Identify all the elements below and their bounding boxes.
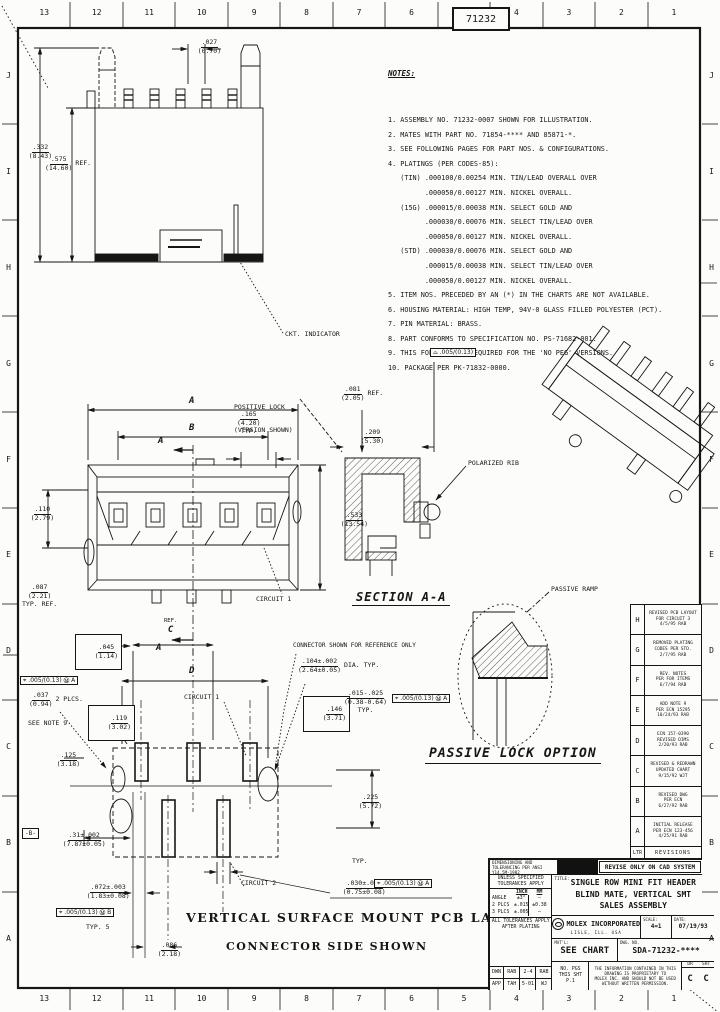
tolerance-row: 3 PLCS ±.005 — (492, 909, 549, 916)
dim-plan-height: .533(13.54) (324, 504, 369, 536)
tolerance-rows: ANGLE ±3° — 2 PLCS ±.015 ±0.38 3 PLCS ±.… (492, 895, 549, 916)
signature-rows: DWN RAB 2-4 RAB APP TAH 5-01 WJ (490, 966, 551, 990)
datum-b-flag: -B- (22, 828, 39, 839)
zone-letters-right: JIHGFEDCBA (703, 28, 720, 986)
revision-row: G REMOVED PLATING CODES PER STD. 2/7/95 … (631, 635, 701, 665)
tolerance-row: ANGLE ±3° — (492, 895, 549, 902)
zone-numbers-top: 13121110987654321 (18, 0, 700, 26)
drawing-number-tab: 71232 (452, 7, 510, 31)
see-note-9: SEE NOTE 9 (28, 720, 67, 728)
section-letter-bottom: A (156, 643, 161, 654)
position-frame-b: ⌖ .005/(0.13) Ⓜ B (56, 908, 114, 917)
revision-row: D ECN 157-0390 REVISED DIMS 2/20/93 RAB (631, 726, 701, 756)
dim-pcb-31: .31±.002(7.87±0.05) (46, 824, 107, 856)
typ-label: TYP. (352, 858, 368, 866)
black-band (558, 860, 598, 874)
sheet-cell: NO. PGS THIS SHT P.1 (552, 962, 589, 990)
dim-pcb-015: .015-.025(0.38-0.64) TYP. (343, 690, 388, 714)
dim-pcb-072: .072±.003(1.83±0.08) (70, 876, 131, 908)
dim-pcb-037: .037(0.94) 2 PLCS. (28, 692, 83, 709)
dim-front-ref: .575(14.60) REF. (44, 156, 91, 173)
tolerance-block: UNLESS SPECIFIED TOLERANCES APPLY INCH M… (490, 875, 552, 990)
dim-pcb-104: .104±.002(2.64±0.05) DIA. TYP. (297, 658, 379, 675)
material-cell: MAT'L: SEE CHART (552, 939, 618, 961)
company-cell: MOLEX INCORPORATED LISLE, ILL. USA (552, 916, 641, 938)
circuit-1-callout-pcb: CIRCUIT 1 (184, 694, 219, 702)
pcb-layout-subtitle: CONNECTOR SIDE SHOWN (226, 940, 428, 953)
dim-plan-left: .110(2.79) (14, 498, 55, 530)
dim-pcb-125: .125(3.18) (40, 744, 81, 776)
revision-row: A INITIAL RELEASE PER ECN 123-456 4/25/9… (631, 817, 701, 847)
fcf-b-suffix: TYP. 5 (86, 924, 109, 932)
section-letter-top: A (158, 436, 163, 447)
revision-row: C REVISED & REDRAWN UPDATED CHART 9/15/9… (631, 756, 701, 786)
position-frame-a2: ⌖ .005/(0.13) Ⓜ A (374, 879, 432, 888)
circuit-1-callout-plan: CIRCUIT 1 (256, 596, 291, 604)
circuit-2-callout: CIRCUIT 2 (241, 880, 276, 888)
revision-table: H REVISED PCB LAYOUT FOR CIRCUIT 3 4/5/9… (630, 604, 702, 860)
dim-letter-b: B (189, 423, 194, 434)
dim-pcb-box119: .119(3.02) (88, 705, 135, 741)
passive-lock-option-title: PASSIVE LOCK OPTION (425, 746, 601, 764)
drawing-title: TITLE: SINGLE ROW MINI FIT HEADER BLIND … (552, 875, 714, 915)
dim-letter-a: A (189, 396, 194, 407)
dim-section-209: .209(5.30) (344, 421, 385, 453)
signature-row: APP TAH 5-01 WJ (490, 978, 551, 990)
ckt-indicator-callout: CKT. INDICATOR (285, 331, 340, 339)
dim-plan-foot: .087(2.21) TYP. REF. (22, 584, 57, 608)
revision-row: B REVISED DWG PER ECN 6/27/92 RAB (631, 787, 701, 817)
dim-letter-d: D (189, 666, 194, 677)
dim-pcb-box045: .045(1.14) (75, 634, 122, 670)
position-frame-a1: ⌖ .005/(0.13) Ⓜ A (20, 676, 78, 685)
passive-ramp-callout: PASSIVE RAMP (551, 586, 598, 594)
polarized-rib-callout: POLARIZED RIB (468, 460, 519, 468)
scale-cell: SCALE: 4=1 (641, 916, 672, 938)
revision-row: H REVISED PCB LAYOUT FOR CIRCUIT 3 4/5/9… (631, 605, 701, 635)
connector-reference-callout: CONNECTOR SHOWN FOR REFERENCE ONLY (293, 642, 416, 649)
drawing-sheet: 13121110987654321 13121110987654321 JIHG… (0, 0, 720, 1012)
notes-lines: 1. ASSEMBLY NO. 71232-0007 SHOWN FOR ILL… (388, 113, 662, 376)
dim-pcb-c: REF. C (164, 618, 177, 635)
revision-cell: DR SHT C C (682, 962, 714, 990)
dim-pcb-225: .225(5.72) (342, 786, 383, 818)
revision-row: E ADD NOTE 9 PER ECN 15295 10/24/93 RAB (631, 696, 701, 726)
section-aa-title: SECTION A-A (352, 590, 450, 606)
positive-lock-callout: POSITIVE LOCK (VERSION SHOWN) (234, 388, 293, 450)
revision-row: F REV. NOTES PER FOR ITEMS 6/7/94 RAB (631, 666, 701, 696)
dim-front-pin-width: .027(0.70) (181, 31, 222, 63)
dim-pcb-086: .086(2.18) (141, 934, 182, 966)
date-cell: DATE: 07/19/93 (672, 916, 714, 938)
profile-tolerance-frame: ⌓ .005/(0.13) (430, 348, 476, 357)
molex-logo-icon (552, 918, 564, 930)
signature-row: DWN RAB 2-4 RAB (490, 966, 551, 978)
dim-section-081: .081(2.05) REF. (340, 386, 383, 403)
legal-cell: THE INFORMATION CONTAINED IN THIS DRAWIN… (589, 962, 682, 990)
title-block: DIMENSIONING AND TOLERANCING PER ANSI Y1… (488, 858, 702, 990)
notes-title: NOTES: (388, 67, 662, 82)
position-frame-a3: ⌖ .005/(0.13) Ⓜ A (392, 694, 450, 703)
drawing-number-cell: DWG. NO. SDA-71232-**** (618, 939, 714, 961)
pcb-layout-title: VERTICAL SURFACE MOUNT PCB LAYOUT (186, 910, 538, 925)
cad-banner: REVISE ONLY ON CAD SYSTEM (599, 861, 701, 873)
revision-rows: H REVISED PCB LAYOUT FOR CIRCUIT 3 4/5/9… (631, 605, 701, 847)
drawing-standard-stamp: DIMENSIONING AND TOLERANCING PER ANSI Y1… (490, 860, 558, 874)
tolerance-row: 2 PLCS ±.015 ±0.38 (492, 902, 549, 909)
